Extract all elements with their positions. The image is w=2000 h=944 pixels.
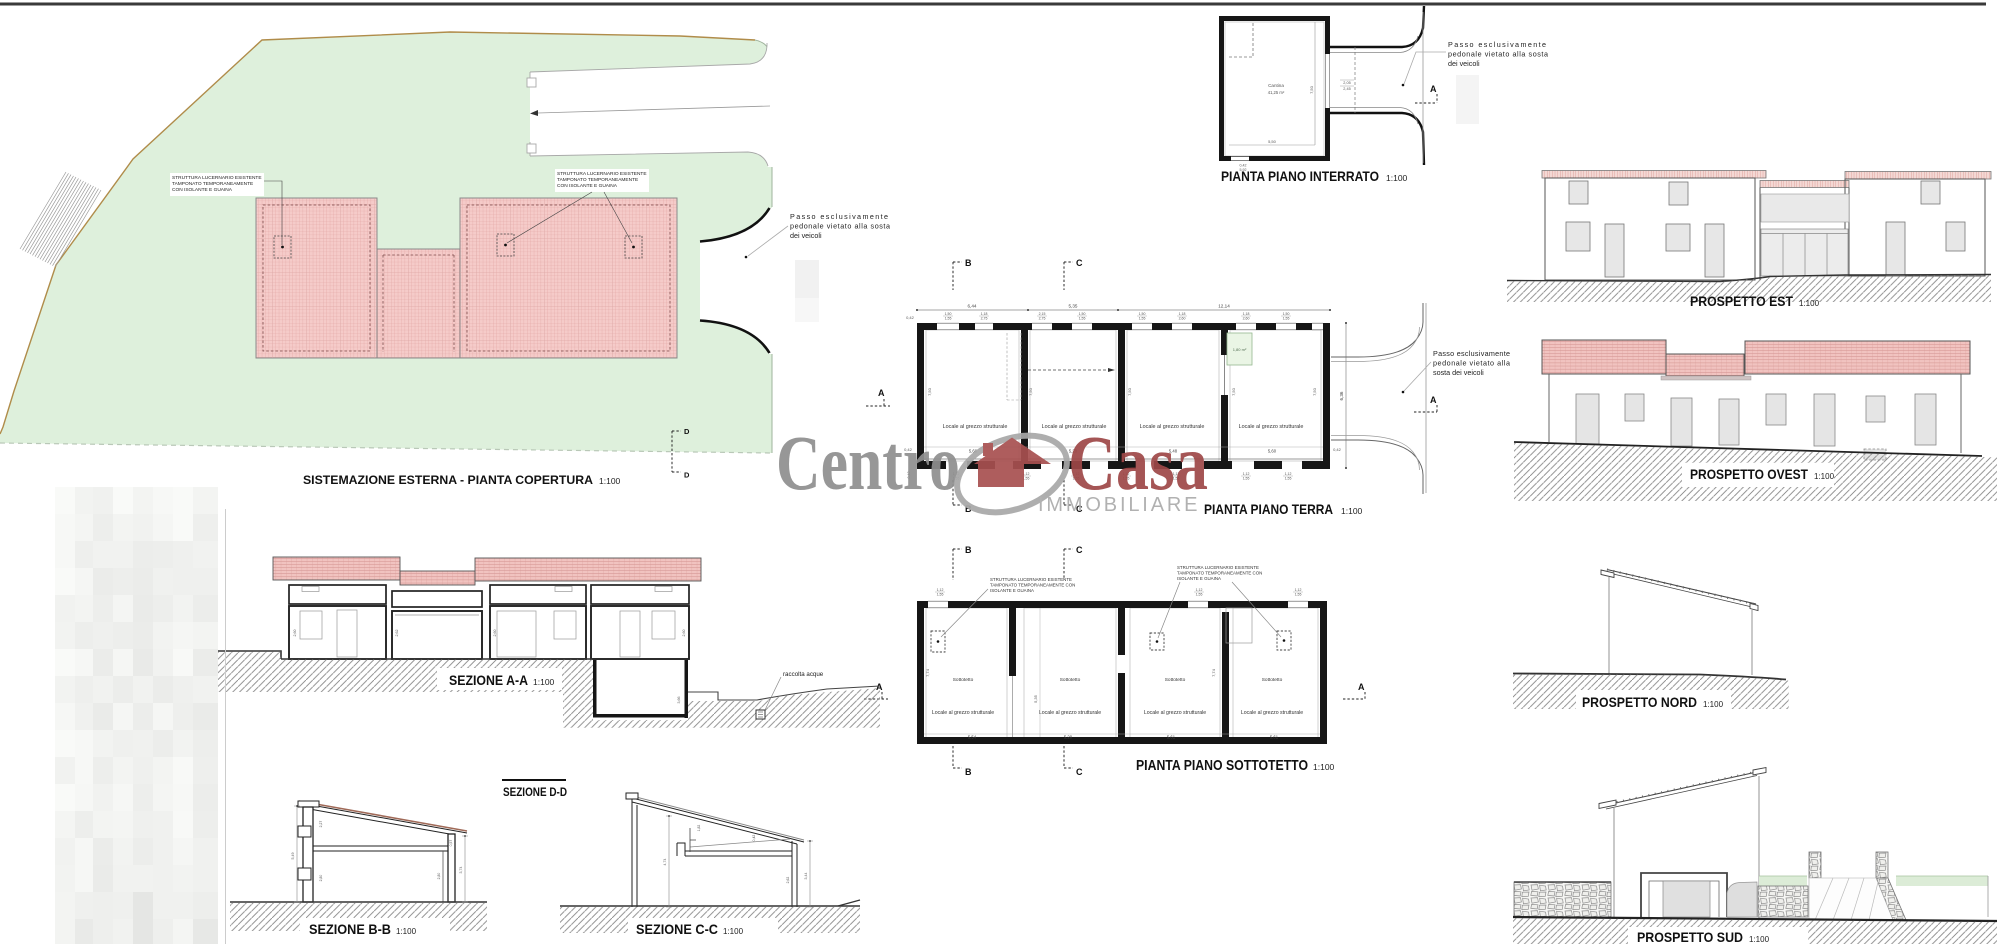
svg-text:5,61: 5,61 — [1167, 735, 1176, 740]
svg-text:Passo esclusivamente: Passo esclusivamente — [1433, 349, 1510, 358]
svg-text:TAMPONATO TEMPORANEAMENTE: TAMPONATO TEMPORANEAMENTE — [172, 181, 253, 187]
svg-text:B: B — [965, 767, 972, 777]
svg-text:1,50: 1,50 — [1139, 312, 1146, 316]
svg-text:1,50: 1,50 — [1079, 312, 1086, 316]
svg-text:TAMPONATO TEMPORANEAMENTE: TAMPONATO TEMPORANEAMENTE — [557, 177, 638, 183]
svg-text:1,55: 1,55 — [1139, 317, 1146, 321]
svg-text:Sottotetto: Sottotetto — [1060, 677, 1081, 683]
svg-text:PROSPETTO EST: PROSPETTO EST — [1690, 293, 1793, 309]
svg-text:7,50: 7,50 — [1309, 85, 1314, 94]
svg-text:7,74: 7,74 — [1211, 668, 1216, 677]
svg-text:0,42: 0,42 — [906, 315, 915, 320]
svg-text:2,60: 2,60 — [682, 630, 686, 637]
svg-text:5,50: 5,50 — [1268, 139, 1277, 144]
svg-text:Passo esclusivamente: Passo esclusivamente — [790, 212, 888, 221]
svg-text:1,18: 1,18 — [981, 312, 988, 316]
svg-text:3,74: 3,74 — [459, 867, 463, 874]
svg-text:C: C — [1076, 767, 1083, 777]
svg-text:7,50: 7,50 — [1312, 387, 1317, 396]
svg-text:1,50: 1,50 — [1283, 312, 1290, 316]
svg-text:B: B — [965, 258, 972, 268]
svg-text:1:100: 1:100 — [723, 927, 744, 936]
svg-text:C: C — [1076, 258, 1083, 268]
svg-text:1:100: 1:100 — [1341, 506, 1363, 516]
svg-text:Casa: Casa — [1068, 419, 1208, 506]
svg-text:2,75: 2,75 — [981, 317, 988, 321]
svg-text:12,14: 12,14 — [1218, 304, 1230, 309]
svg-text:5,49: 5,49 — [291, 853, 295, 860]
svg-text:IMMOBILIARE: IMMOBILIARE — [1038, 494, 1202, 516]
svg-text:6,44: 6,44 — [968, 304, 977, 309]
svg-text:raccolta acque: raccolta acque — [783, 671, 824, 678]
svg-text:1,12: 1,12 — [1285, 472, 1292, 476]
svg-text:1,12: 1,12 — [937, 588, 944, 592]
svg-text:1,55: 1,55 — [945, 317, 952, 321]
svg-text:PROSPETTO NORD: PROSPETTO NORD — [1582, 694, 1697, 710]
svg-text:D: D — [684, 471, 690, 480]
svg-text:1:100: 1:100 — [1814, 472, 1835, 481]
svg-text:0,42: 0,42 — [1240, 164, 1247, 168]
svg-text:1:100: 1:100 — [1313, 762, 1335, 772]
svg-text:STRUTTURA LUCERNARIO ESISTEN: STRUTTURA LUCERNARIO ESISTENTE — [990, 577, 1072, 582]
svg-text:2,60: 2,60 — [1179, 317, 1186, 321]
svg-text:dei veicoli: dei veicoli — [790, 231, 822, 240]
svg-text:2,60: 2,60 — [293, 630, 297, 637]
svg-text:7,50: 7,50 — [927, 387, 932, 396]
svg-text:D: D — [684, 427, 690, 436]
svg-text:CON ISOLANTE E GUAINA: CON ISOLANTE E GUAINA — [172, 187, 233, 193]
svg-text:ISOLANTE E GUAINA: ISOLANTE E GUAINA — [990, 588, 1034, 593]
svg-text:1,18: 1,18 — [1179, 312, 1186, 316]
svg-text:1,55: 1,55 — [1295, 593, 1302, 597]
svg-text:2,75: 2,75 — [1039, 317, 1046, 321]
svg-text:sosta dei veicoli: sosta dei veicoli — [1433, 368, 1484, 377]
svg-text:Sottotetto: Sottotetto — [1165, 677, 1186, 683]
svg-text:3,66: 3,66 — [677, 697, 681, 704]
svg-text:PROSPETTO OVEST: PROSPETTO OVEST — [1690, 466, 1808, 482]
svg-text:PIANTA PIANO SOTTOTETTO: PIANTA PIANO SOTTOTETTO — [1136, 757, 1308, 774]
svg-text:A: A — [1430, 395, 1437, 405]
svg-text:pedonale vietato alla: pedonale vietato alla — [1433, 359, 1510, 368]
svg-text:5,20: 5,20 — [1064, 735, 1073, 740]
svg-text:A: A — [1430, 84, 1437, 94]
svg-text:2,80: 2,80 — [319, 875, 323, 882]
svg-text:2,15: 2,15 — [1039, 312, 1046, 316]
svg-text:7,50: 7,50 — [1127, 387, 1132, 396]
svg-text:2,45: 2,45 — [1343, 87, 1350, 91]
svg-text:5,35: 5,35 — [1033, 694, 1038, 703]
svg-text:5,35: 5,35 — [1069, 304, 1078, 309]
svg-text:1,55: 1,55 — [1243, 477, 1250, 481]
svg-text:7,74: 7,74 — [925, 668, 930, 677]
svg-text:2,60: 2,60 — [1243, 317, 1250, 321]
svg-text:Locale al grezzo strutturale: Locale al grezzo strutturale — [1241, 710, 1303, 716]
svg-text:SISTEMAZIONE ESTERNA - PIANTA: SISTEMAZIONE ESTERNA - PIANTA COPERTURA — [303, 475, 593, 487]
svg-text:1,12: 1,12 — [1295, 588, 1302, 592]
svg-text:2,05: 2,05 — [1343, 81, 1350, 85]
svg-text:1,55: 1,55 — [1285, 477, 1292, 481]
svg-text:1,18: 1,18 — [1243, 312, 1250, 316]
svg-text:TAMPONATO TEMPORANEAMENTE CO: TAMPONATO TEMPORANEAMENTE CON — [990, 583, 1075, 588]
svg-text:Locale al grezzo strutturale: Locale al grezzo strutturale — [1039, 710, 1101, 716]
svg-text:1:100: 1:100 — [1386, 173, 1408, 183]
svg-text:2,27: 2,27 — [319, 821, 323, 828]
svg-text:Sottotetto: Sottotetto — [1262, 677, 1283, 683]
svg-text:1:100: 1:100 — [1799, 299, 1820, 308]
svg-text:STRUTTURA LUCERNARIO ESISTENTE: STRUTTURA LUCERNARIO ESISTENTE — [172, 175, 262, 181]
svg-text:1,50: 1,50 — [945, 312, 952, 316]
svg-text:Cantina: Cantina — [1268, 83, 1284, 88]
svg-text:0,57: 0,57 — [449, 840, 453, 847]
svg-text:SEZIONE B-B: SEZIONE B-B — [309, 922, 391, 937]
svg-text:2,80: 2,80 — [437, 873, 441, 880]
svg-text:A: A — [878, 388, 885, 398]
svg-text:B: B — [965, 545, 972, 555]
svg-text:ISOLANTE E GUAINA: ISOLANTE E GUAINA — [1177, 576, 1221, 581]
svg-text:1,80 m²: 1,80 m² — [1233, 347, 1247, 352]
svg-text:STRUTTURA LUCERNARIO ESISTENTE: STRUTTURA LUCERNARIO ESISTENTE — [557, 171, 647, 177]
svg-text:C: C — [1076, 545, 1083, 555]
svg-text:SEZIONE D-D: SEZIONE D-D — [503, 787, 567, 799]
svg-text:Passo esclusivamente: Passo esclusivamente — [1448, 40, 1546, 49]
svg-text:1,12: 1,12 — [1196, 588, 1203, 592]
svg-text:Sottotetto: Sottotetto — [953, 677, 974, 683]
svg-text:3,44: 3,44 — [804, 873, 808, 880]
svg-text:dei veicoli: dei veicoli — [1448, 59, 1480, 68]
svg-text:5,54: 5,54 — [968, 735, 977, 740]
svg-text:Locale al grezzo strutturale: Locale al grezzo strutturale — [1144, 710, 1206, 716]
svg-text:Locale al grezzo strutturale: Locale al grezzo strutturale — [932, 710, 994, 716]
svg-text:CON ISOLANTE E GUAINA: CON ISOLANTE E GUAINA — [557, 183, 618, 189]
svg-text:1,55: 1,55 — [937, 593, 944, 597]
svg-text:2,62: 2,62 — [395, 630, 399, 637]
svg-text:STRUTTURA LUCERNARIO ESISTEN: STRUTTURA LUCERNARIO ESISTENTE — [1177, 565, 1259, 570]
svg-text:PIANTA PIANO INTERRATO: PIANTA PIANO INTERRATO — [1221, 168, 1379, 184]
svg-text:pedonale vietato alla sosta: pedonale vietato alla sosta — [1448, 50, 1548, 59]
svg-text:1,55: 1,55 — [1079, 317, 1086, 321]
svg-text:PROSPETTO SUD: PROSPETTO SUD — [1637, 929, 1743, 944]
svg-text:1:100: 1:100 — [396, 927, 417, 936]
svg-text:PIANTA PIANO TERRA: PIANTA PIANO TERRA — [1204, 501, 1333, 517]
svg-text:1,55: 1,55 — [1196, 593, 1203, 597]
svg-text:1,55: 1,55 — [1283, 317, 1290, 321]
svg-text:2,62: 2,62 — [786, 877, 790, 884]
svg-text:1,12: 1,12 — [1243, 472, 1250, 476]
svg-text:41,25 m²: 41,25 m² — [1268, 90, 1285, 95]
svg-text:Centro: Centro — [776, 419, 960, 506]
svg-text:A: A — [1358, 682, 1365, 692]
svg-text:SEZIONE C-C: SEZIONE C-C — [636, 922, 718, 937]
svg-text:0,42: 0,42 — [1333, 447, 1342, 452]
svg-text:0,42: 0,42 — [752, 835, 756, 842]
svg-text:1:100: 1:100 — [533, 677, 555, 687]
svg-text:6,36: 6,36 — [1339, 391, 1344, 400]
svg-text:7,50: 7,50 — [1028, 387, 1033, 396]
svg-text:1:100: 1:100 — [1703, 700, 1724, 709]
svg-text:Locale al grezzo strutturale: Locale al grezzo strutturale — [1239, 424, 1304, 430]
svg-text:pedonale vietato alla sosta: pedonale vietato alla sosta — [790, 222, 890, 231]
svg-text:4,74: 4,74 — [663, 859, 667, 866]
svg-text:5,60: 5,60 — [1268, 449, 1277, 454]
svg-text:7,50: 7,50 — [1231, 387, 1236, 396]
svg-text:TAMPONATO TEMPORANEAMENTE CO: TAMPONATO TEMPORANEAMENTE CON — [1177, 571, 1262, 576]
svg-text:1:100: 1:100 — [1749, 935, 1770, 944]
svg-text:5,61: 5,61 — [1270, 735, 1279, 740]
svg-text:2,60: 2,60 — [493, 630, 497, 637]
svg-text:SEZIONE A-A: SEZIONE A-A — [449, 672, 528, 688]
svg-text:1:100: 1:100 — [599, 476, 621, 486]
svg-text:1,82: 1,82 — [697, 825, 701, 832]
